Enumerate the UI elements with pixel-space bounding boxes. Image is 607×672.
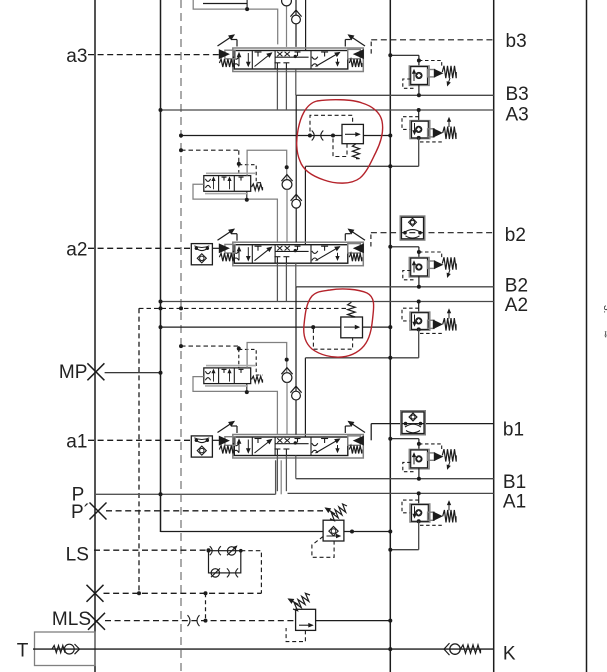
svg-text:B3: B3 [506, 84, 529, 105]
svg-text:3.: 3. [601, 305, 607, 313]
svg-text:b1: b1 [503, 419, 524, 440]
svg-text:A3: A3 [506, 105, 529, 126]
svg-text:b2: b2 [505, 225, 526, 246]
svg-text:P´: P´ [71, 502, 90, 523]
svg-text:LS: LS [66, 545, 89, 566]
svg-text:B1: B1 [503, 472, 526, 493]
svg-text:a1: a1 [66, 432, 87, 453]
svg-text:MLS: MLS [52, 609, 91, 630]
svg-text:MP: MP [59, 362, 88, 383]
svg-text:A2: A2 [505, 295, 528, 316]
svg-text:b3: b3 [506, 31, 527, 52]
svg-text:K: K [503, 643, 516, 664]
svg-text:≋: ≋ [601, 330, 607, 338]
svg-text:T: T [17, 641, 29, 662]
svg-text:a2: a2 [66, 240, 87, 261]
svg-text:B2: B2 [505, 276, 528, 297]
svg-text:A1: A1 [503, 491, 526, 512]
svg-text:a3: a3 [66, 46, 87, 67]
